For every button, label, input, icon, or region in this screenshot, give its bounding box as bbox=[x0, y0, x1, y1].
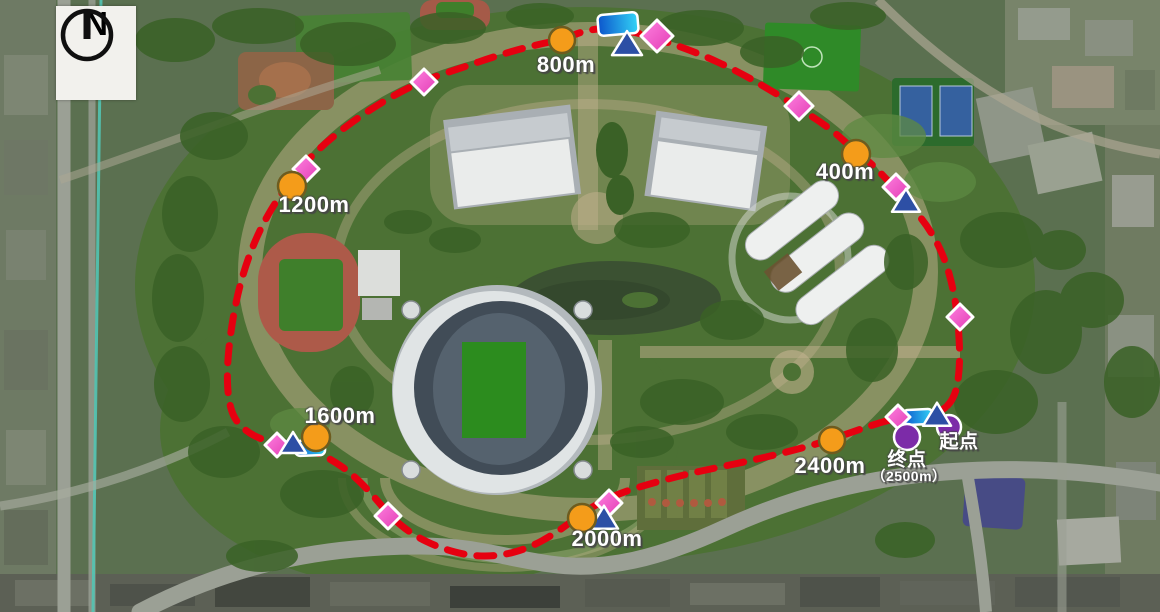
map-canvas: 800m400m1200m1600m2000m2400m终点（2500m）起点 … bbox=[0, 0, 1160, 612]
finish-point-icon bbox=[894, 424, 920, 450]
distance-point-2000m bbox=[568, 504, 596, 532]
flag-icon-800m bbox=[597, 12, 639, 36]
north-compass: N bbox=[56, 6, 136, 100]
distance-point-1200m bbox=[278, 172, 306, 200]
distance-point-400m bbox=[842, 140, 870, 168]
distance-point-800m bbox=[549, 27, 575, 53]
distance-point-1600m bbox=[302, 423, 330, 451]
distance-point-2400m bbox=[819, 427, 845, 453]
satellite-map-image bbox=[0, 0, 1160, 612]
compass-dial-icon bbox=[56, 6, 118, 62]
